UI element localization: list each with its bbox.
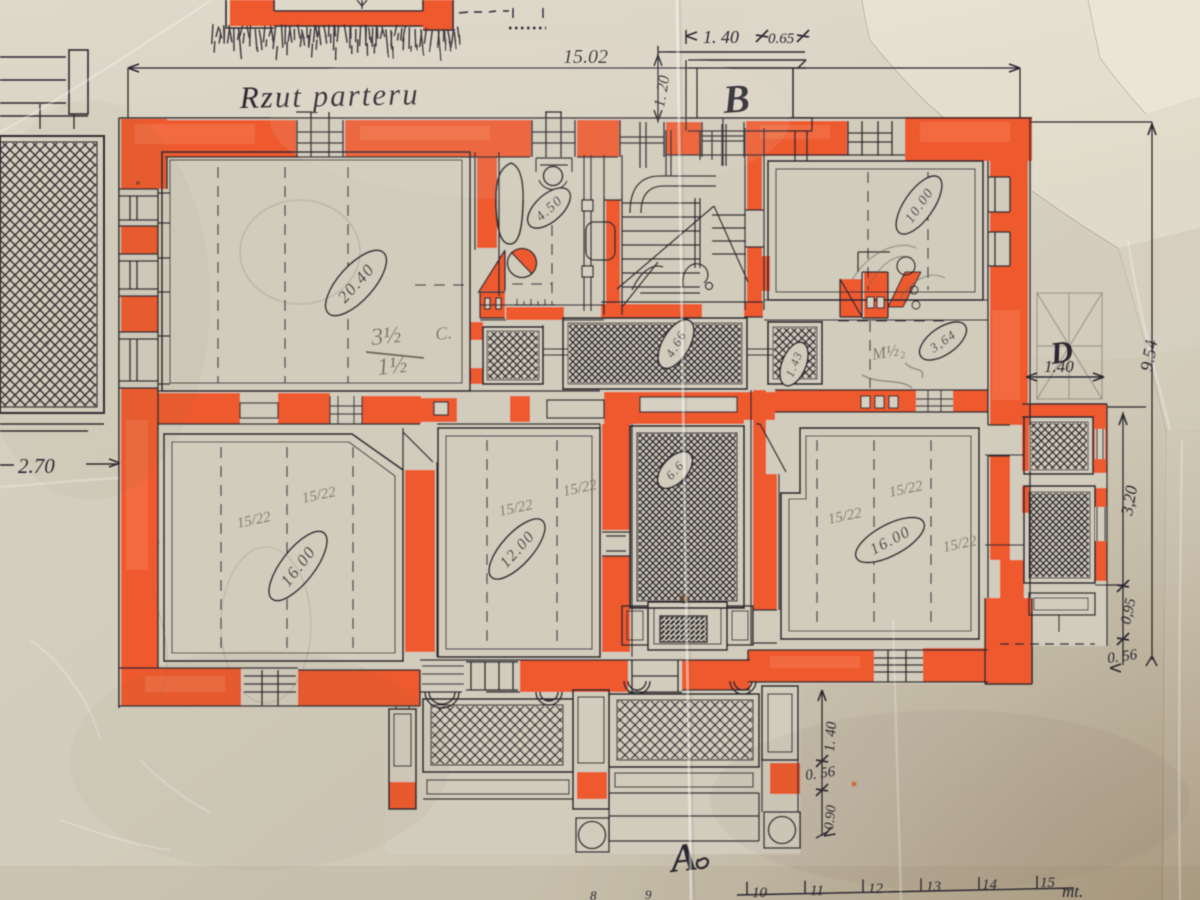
svg-text:9: 9 <box>645 887 652 900</box>
svg-text:1.40: 1.40 <box>1044 357 1074 376</box>
svg-text:0.65: 0.65 <box>768 31 795 47</box>
svg-text:10: 10 <box>752 885 768 900</box>
svg-text:8: 8 <box>590 888 597 900</box>
svg-text:3½: 3½ <box>369 322 403 351</box>
svg-text:1. 40: 1. 40 <box>703 27 739 47</box>
svg-text:C.: C. <box>434 322 453 344</box>
svg-text:mt.: mt. <box>1062 882 1083 900</box>
svg-text:11: 11 <box>810 883 824 899</box>
